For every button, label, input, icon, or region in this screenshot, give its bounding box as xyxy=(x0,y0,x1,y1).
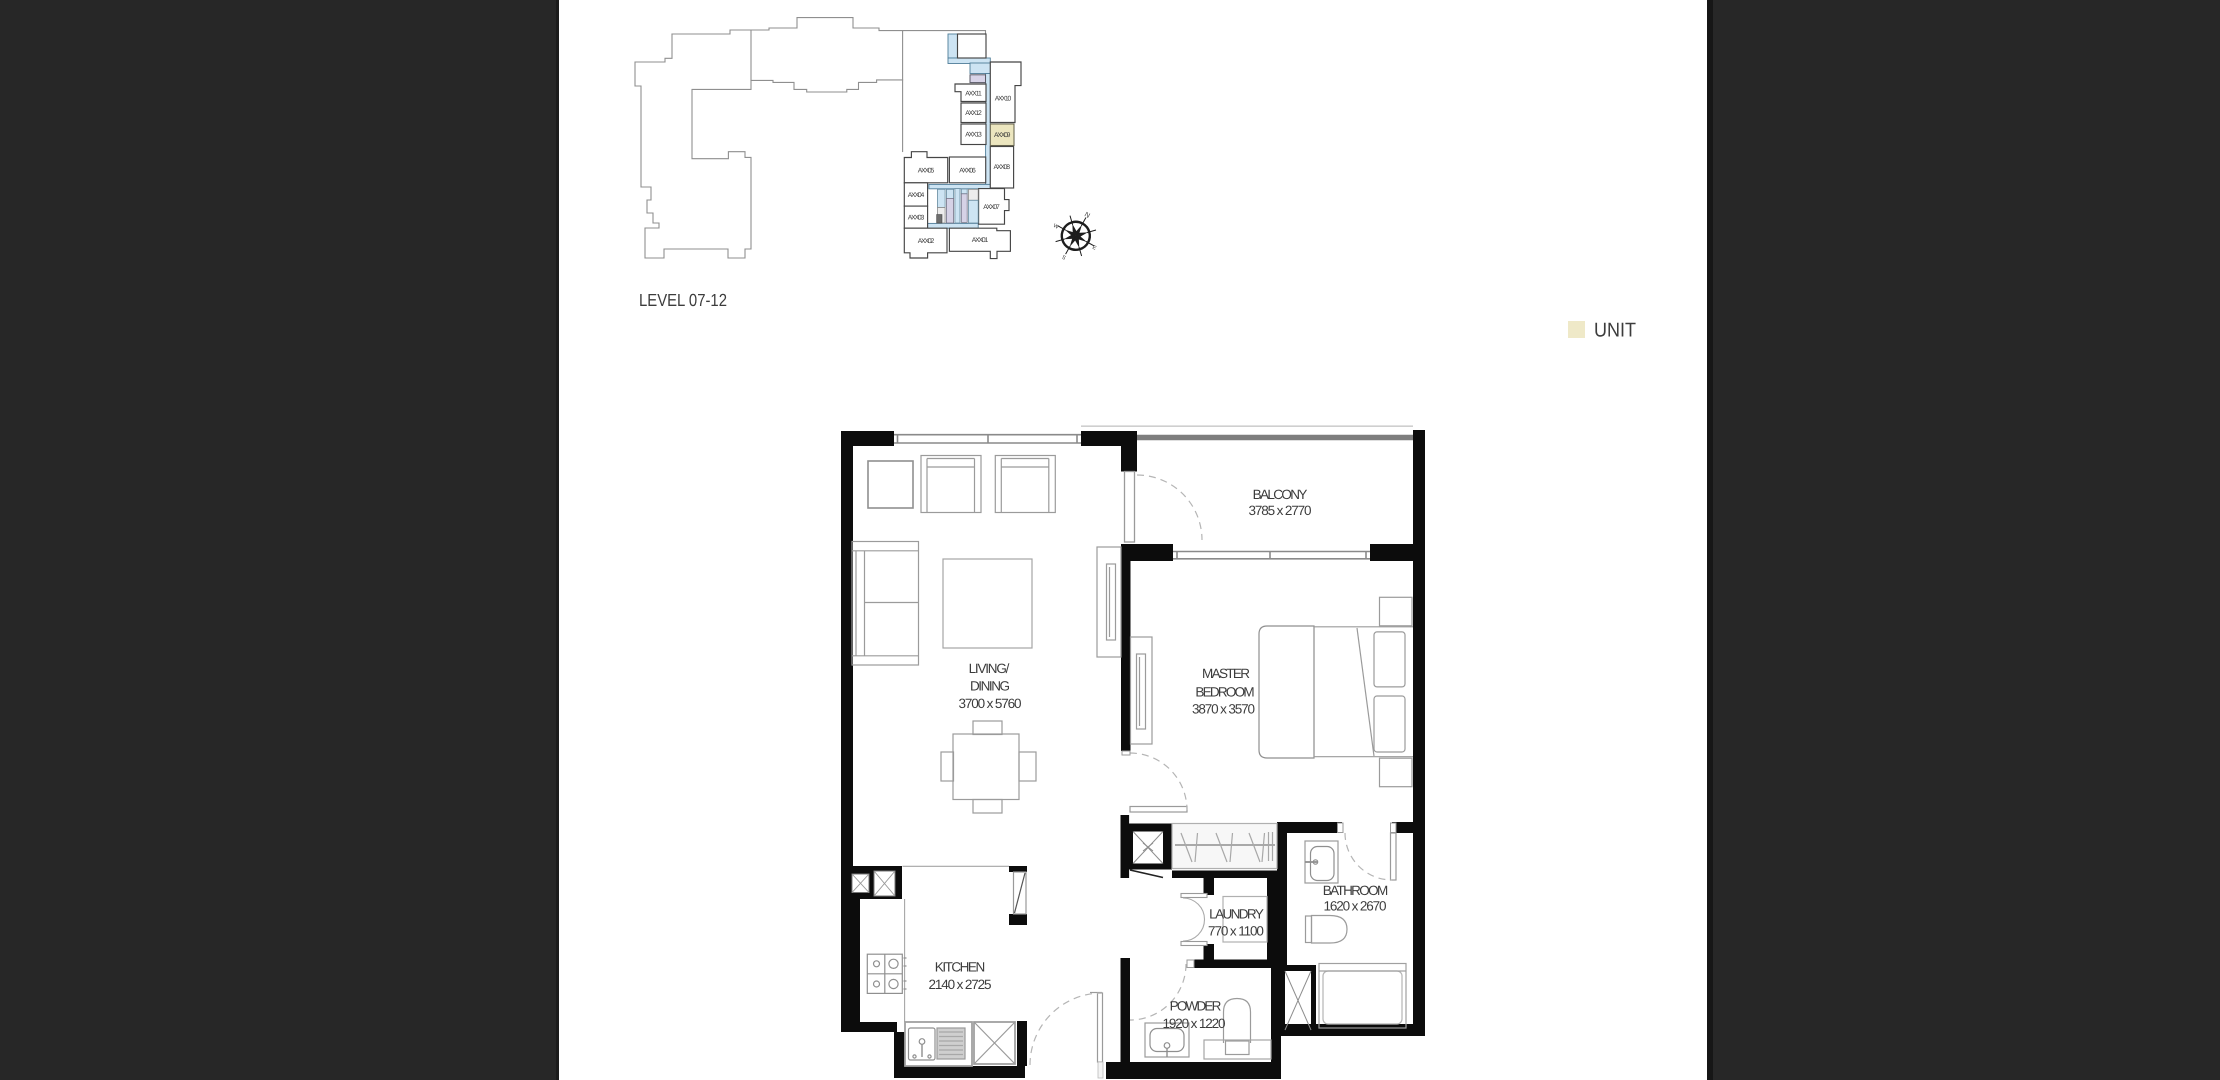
svg-text:3700 x 5760: 3700 x 5760 xyxy=(959,696,1022,711)
svg-text:BEDROOM: BEDROOM xyxy=(1195,685,1254,700)
svg-text:UNIT: UNIT xyxy=(1594,320,1636,342)
svg-text:BALCONY: BALCONY xyxy=(1253,487,1308,502)
svg-text:AXX02: AXX02 xyxy=(918,238,935,245)
svg-text:AXX12: AXX12 xyxy=(965,110,982,117)
svg-text:AXX01: AXX01 xyxy=(972,237,989,244)
svg-text:E: E xyxy=(1091,245,1097,252)
svg-text:770 x 1100: 770 x 1100 xyxy=(1208,924,1264,939)
svg-text:BATHROOM: BATHROOM xyxy=(1323,883,1389,898)
svg-text:2140 x 2725: 2140 x 2725 xyxy=(929,977,992,992)
svg-text:LAUNDRY: LAUNDRY xyxy=(1209,907,1264,922)
svg-text:MASTER: MASTER xyxy=(1202,666,1250,681)
svg-text:AXX03: AXX03 xyxy=(908,215,925,222)
svg-text:1920 x 1220: 1920 x 1220 xyxy=(1163,1016,1226,1031)
svg-text:1620 x 2670: 1620 x 2670 xyxy=(1324,899,1387,914)
svg-text:3785 x 2770: 3785 x 2770 xyxy=(1249,503,1312,518)
svg-text:AXX07: AXX07 xyxy=(983,204,1000,211)
svg-text:AXX10: AXX10 xyxy=(995,96,1012,103)
svg-text:3870 x 3570: 3870 x 3570 xyxy=(1192,702,1255,717)
svg-text:AXX06: AXX06 xyxy=(959,168,976,175)
svg-text:KITCHEN: KITCHEN xyxy=(935,960,985,975)
svg-text:N: N xyxy=(1083,211,1091,220)
svg-text:AXX09: AXX09 xyxy=(994,132,1011,139)
svg-text:AXX13: AXX13 xyxy=(965,132,982,139)
svg-text:LIVING/: LIVING/ xyxy=(969,661,1010,676)
svg-text:AXX05: AXX05 xyxy=(918,168,935,175)
svg-text:DINING: DINING xyxy=(970,679,1010,694)
svg-text:S: S xyxy=(1060,255,1066,262)
svg-text:LEVEL 07-12: LEVEL 07-12 xyxy=(639,290,727,310)
svg-text:POWDER: POWDER xyxy=(1170,999,1222,1014)
svg-text:AXX11: AXX11 xyxy=(965,91,982,98)
svg-text:W: W xyxy=(1052,223,1060,231)
svg-text:AXX08: AXX08 xyxy=(994,164,1011,171)
svg-text:AXX04: AXX04 xyxy=(908,192,925,199)
